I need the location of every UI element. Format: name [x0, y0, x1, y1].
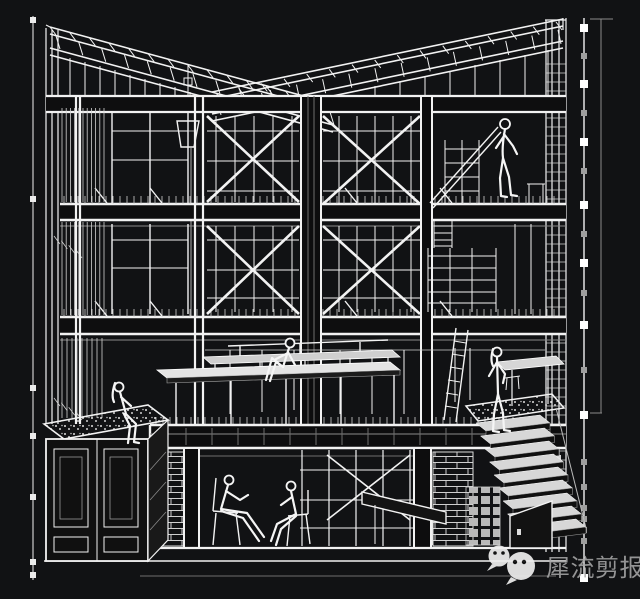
basement-column-left: [184, 448, 199, 548]
architectural-section-drawing: 犀流剪报: [0, 0, 640, 599]
basement-column-right: [414, 448, 431, 548]
watermark-text: 犀流剪报: [546, 554, 640, 582]
glass-block-wall: [466, 487, 500, 545]
door-handle-icon: [517, 529, 521, 535]
section-drawing-canvas: 犀流剪报: [0, 0, 640, 599]
